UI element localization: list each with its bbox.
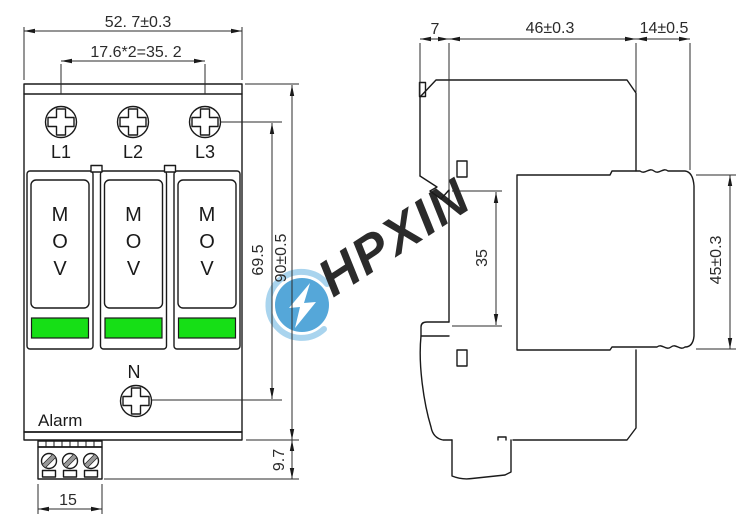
status-indicator-green xyxy=(32,318,89,338)
dim-terminal-block-width: 15 xyxy=(59,492,77,509)
module-letter: M xyxy=(125,204,142,226)
dim-overall-width: 52. 7±0.3 xyxy=(105,14,172,31)
side-view xyxy=(420,80,695,479)
side-window xyxy=(457,350,467,366)
base-top-outline xyxy=(420,80,636,171)
module-letter: V xyxy=(200,258,214,280)
dim-screw-span: 69.5 xyxy=(250,244,267,275)
screw-l1 xyxy=(46,107,77,138)
dim-terminal-pitch: 17.6*2=35. 2 xyxy=(90,44,181,61)
dim-module-depth: 14±0.5 xyxy=(640,20,689,37)
module-letter: V xyxy=(53,258,67,280)
wire-entry xyxy=(43,471,56,478)
alarm-terminal-screw xyxy=(63,454,78,469)
front-view: M O V M O V M O V xyxy=(24,84,242,479)
module-letter: M xyxy=(199,204,216,226)
dim-overall-height: 90±0.5 xyxy=(273,233,290,282)
terminal-label-l3: L3 xyxy=(195,142,215,162)
din-clip-foot xyxy=(421,322,449,336)
dim-base-depth: 46±0.3 xyxy=(526,20,575,37)
bottom-cap xyxy=(24,432,242,440)
dim-din-rail-height: 35 xyxy=(474,249,491,267)
mov-module-3: M O V xyxy=(174,171,240,349)
base-bottom-outline xyxy=(513,350,636,440)
screw-l3 xyxy=(190,107,221,138)
module-connector-tab xyxy=(91,166,102,173)
bottom-terminal-protrusion xyxy=(452,440,511,479)
mov-module-1: M O V xyxy=(27,171,93,349)
watermark-text: HPXIN xyxy=(308,167,481,308)
mov-module-2: M O V xyxy=(101,171,167,349)
terminal-clamp-teeth xyxy=(46,441,94,447)
terminal-label-l2: L2 xyxy=(123,142,143,162)
alarm-label: Alarm xyxy=(38,411,82,430)
wire-entry xyxy=(85,471,98,478)
dim-terminal-depth: 9.7 xyxy=(271,449,288,471)
protrusion-notch xyxy=(498,437,506,440)
terminal-block xyxy=(38,441,102,479)
side-window xyxy=(457,161,467,177)
alarm-terminal-screw xyxy=(42,454,57,469)
module-letter: O xyxy=(199,231,215,253)
module-connector-tab xyxy=(165,166,176,173)
dim-module-height: 45±0.3 xyxy=(708,235,725,284)
module-letter: O xyxy=(52,231,68,253)
technical-drawing: HPXIN M O V M O V M O xyxy=(0,0,747,531)
screw-n xyxy=(121,386,152,417)
base-lower-left-edge xyxy=(420,336,452,440)
module-letter: O xyxy=(126,231,142,253)
module-side-outline xyxy=(517,170,694,350)
dim-clip-offset: 7 xyxy=(431,21,440,38)
status-indicator-green xyxy=(105,318,162,338)
neutral-label: N xyxy=(128,362,141,382)
terminal-label-l1: L1 xyxy=(51,142,71,162)
status-indicator-green xyxy=(179,318,236,338)
module-letter: V xyxy=(127,258,141,280)
module-letter: M xyxy=(52,204,69,226)
alarm-terminal-screw xyxy=(84,454,99,469)
wire-entry xyxy=(64,471,77,478)
screw-l2 xyxy=(118,107,149,138)
drawing-canvas: HPXIN M O V M O V M O xyxy=(0,0,747,531)
